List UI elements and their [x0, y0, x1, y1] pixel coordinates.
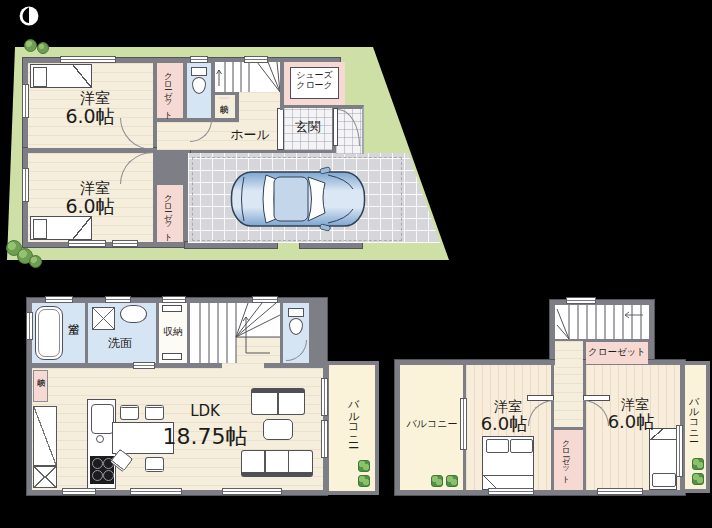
- window: [252, 296, 278, 303]
- room-label: 洋室: [595, 396, 675, 412]
- stairs-icon: [555, 305, 649, 339]
- toilet-icon: [288, 308, 304, 336]
- window: [112, 240, 138, 247]
- plant-icon: [692, 473, 704, 485]
- balcony-label: バルコニー: [402, 418, 462, 430]
- window: [566, 297, 596, 304]
- plant-icon: [431, 475, 443, 487]
- ldk-label: LDK: [150, 403, 260, 420]
- balcony-label: バルコニー: [688, 390, 700, 435]
- tall-storage: [33, 406, 57, 466]
- bed-icon: [30, 64, 92, 88]
- room-area: 6.0帖: [45, 106, 135, 128]
- north-arrow-icon: [19, 6, 39, 26]
- wall: [183, 58, 187, 120]
- plant-icon: [358, 460, 370, 472]
- refrigerator-space: [33, 466, 57, 488]
- bed-icon: [30, 216, 92, 240]
- bed-icon: [482, 436, 534, 490]
- coffee-table-icon: [263, 419, 293, 440]
- window: [244, 56, 268, 63]
- opening: [556, 358, 582, 368]
- sofa-icon: [241, 450, 313, 477]
- window: [488, 488, 534, 495]
- stairs-icon: [190, 303, 280, 363]
- room-label: 洋室: [468, 398, 548, 414]
- bush-icon: [29, 255, 42, 268]
- shoe-cloak-label: シューズクローク: [290, 70, 339, 91]
- plant-icon: [358, 475, 370, 487]
- chair-icon: [145, 457, 164, 472]
- window: [676, 425, 683, 477]
- window: [45, 296, 73, 303]
- wall: [211, 58, 215, 120]
- window: [105, 296, 131, 303]
- wall: [280, 58, 284, 110]
- floor-plan-canvas: 洋室 6.0帖 洋室 6.0帖 クローゼット クローゼット 収納 シューズクロー…: [0, 0, 712, 528]
- plant-icon: [446, 475, 458, 487]
- opening: [222, 363, 264, 370]
- chair-icon: [120, 405, 139, 420]
- room-area: 6.0帖: [464, 414, 544, 435]
- bush-icon: [37, 42, 49, 54]
- bathtub-icon: [35, 306, 63, 360]
- plant-icon: [692, 458, 704, 470]
- window: [22, 84, 29, 118]
- bush-icon: [24, 39, 37, 52]
- window: [190, 56, 208, 63]
- ldk-area: 18.75帖: [145, 424, 265, 449]
- sink-icon: [120, 305, 147, 323]
- toilet-icon: [191, 67, 207, 95]
- closet-label: クローゼット: [586, 347, 648, 358]
- room-area: 6.0帖: [45, 196, 135, 218]
- window: [22, 168, 29, 202]
- bed-icon: [649, 428, 677, 490]
- washroom-label: 洗面: [92, 337, 148, 351]
- wall: [215, 92, 237, 95]
- closet-label: クローゼット: [163, 66, 173, 115]
- car-icon: [230, 170, 366, 228]
- washer-icon: [92, 307, 115, 330]
- window: [321, 378, 328, 416]
- hall-floor: [239, 92, 280, 125]
- window: [62, 488, 96, 495]
- window: [60, 56, 116, 63]
- window: [222, 488, 282, 495]
- closet-label: クローゼット: [163, 188, 173, 237]
- entrance-label: 玄関: [284, 120, 332, 135]
- wall: [235, 92, 239, 120]
- corridor-floor: [554, 365, 583, 427]
- window: [133, 362, 155, 369]
- closet-label: クローゼット: [561, 434, 570, 480]
- room-area: 6.0帖: [591, 412, 671, 433]
- pantry: [33, 370, 48, 402]
- window: [68, 240, 106, 247]
- window: [130, 488, 182, 495]
- balcony-label: バルコニー: [346, 392, 359, 442]
- window: [162, 296, 186, 303]
- window: [26, 312, 33, 340]
- storage-label: 収納: [159, 326, 187, 338]
- window: [597, 488, 643, 495]
- wall: [153, 58, 157, 120]
- hall-label: ホール: [218, 128, 282, 143]
- window: [321, 420, 328, 458]
- stairs-icon: [215, 62, 280, 92]
- storage-label: 収納: [219, 97, 229, 99]
